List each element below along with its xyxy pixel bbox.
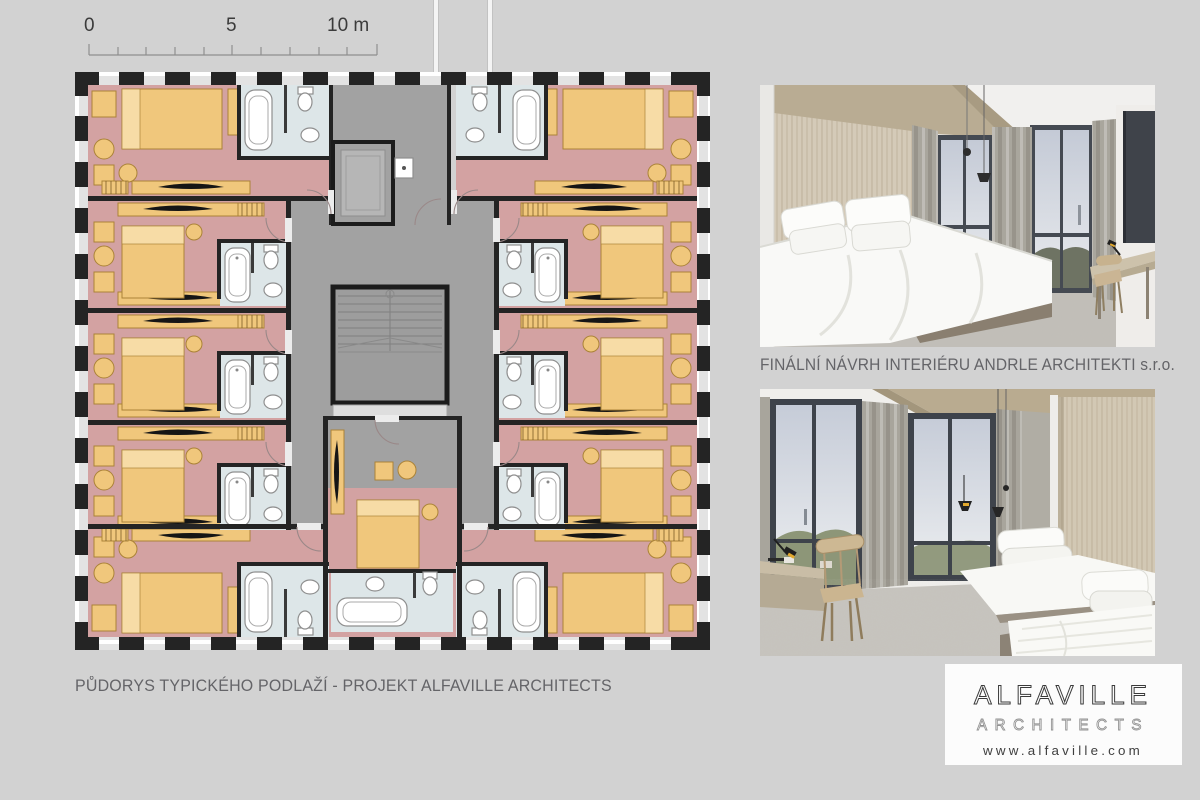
mirror <box>1126 111 1155 243</box>
logo-subtitle: ARCHITECTS <box>977 717 1149 734</box>
windows-bottom <box>97 637 688 650</box>
section-line-left <box>433 0 439 73</box>
logo-website: www.alfaville.com <box>982 744 1143 758</box>
photos-caption: FINÁLNÍ NÁVRH INTERIÉRU ANDRLE ARCHITEKT… <box>760 356 1175 375</box>
window <box>908 413 996 581</box>
toilet-icon <box>423 577 437 595</box>
window <box>770 399 862 591</box>
photo-room-double <box>760 85 1155 347</box>
section-line-right <box>487 0 493 73</box>
scale-label-10m: 10 m <box>327 15 369 37</box>
pillows <box>1081 569 1152 613</box>
staircase <box>333 287 447 419</box>
scale-label-0: 0 <box>84 15 95 37</box>
plan-caption: PŮDORYS TYPICKÉHO PODLAŽÍ - PROJEKT ALFA… <box>75 676 612 696</box>
windows-top <box>97 72 688 85</box>
photo-room-twin <box>760 389 1155 656</box>
scale-ruler <box>88 42 378 57</box>
windows-right <box>697 94 710 628</box>
sink-icon <box>366 577 384 591</box>
floor-plan <box>75 72 710 650</box>
logo-name: ALFAVILLE <box>974 680 1152 710</box>
logo: ALFAVILLE ARCHITECTS www.alfaville.com <box>945 664 1182 765</box>
logo-box: ALFAVILLE ARCHITECTS www.alfaville.com <box>945 664 1182 765</box>
presentation-board: 0 5 10 m <box>0 0 1200 800</box>
scale-label-5: 5 <box>226 15 237 37</box>
windows-left <box>75 94 88 628</box>
